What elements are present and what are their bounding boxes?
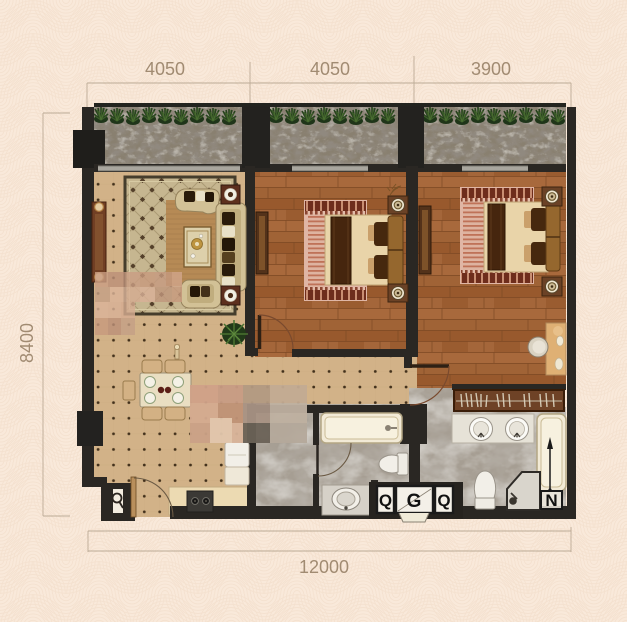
- svg-text:12000: 12000: [299, 557, 349, 577]
- svg-text:Q: Q: [437, 491, 450, 510]
- svg-text:3900: 3900: [471, 59, 511, 79]
- svg-text:G: G: [407, 491, 422, 512]
- svg-text:N: N: [545, 491, 557, 510]
- svg-text:Q: Q: [379, 491, 392, 510]
- svg-text:4050: 4050: [310, 59, 350, 79]
- svg-text:8400: 8400: [17, 323, 37, 363]
- svg-text:4050: 4050: [145, 59, 185, 79]
